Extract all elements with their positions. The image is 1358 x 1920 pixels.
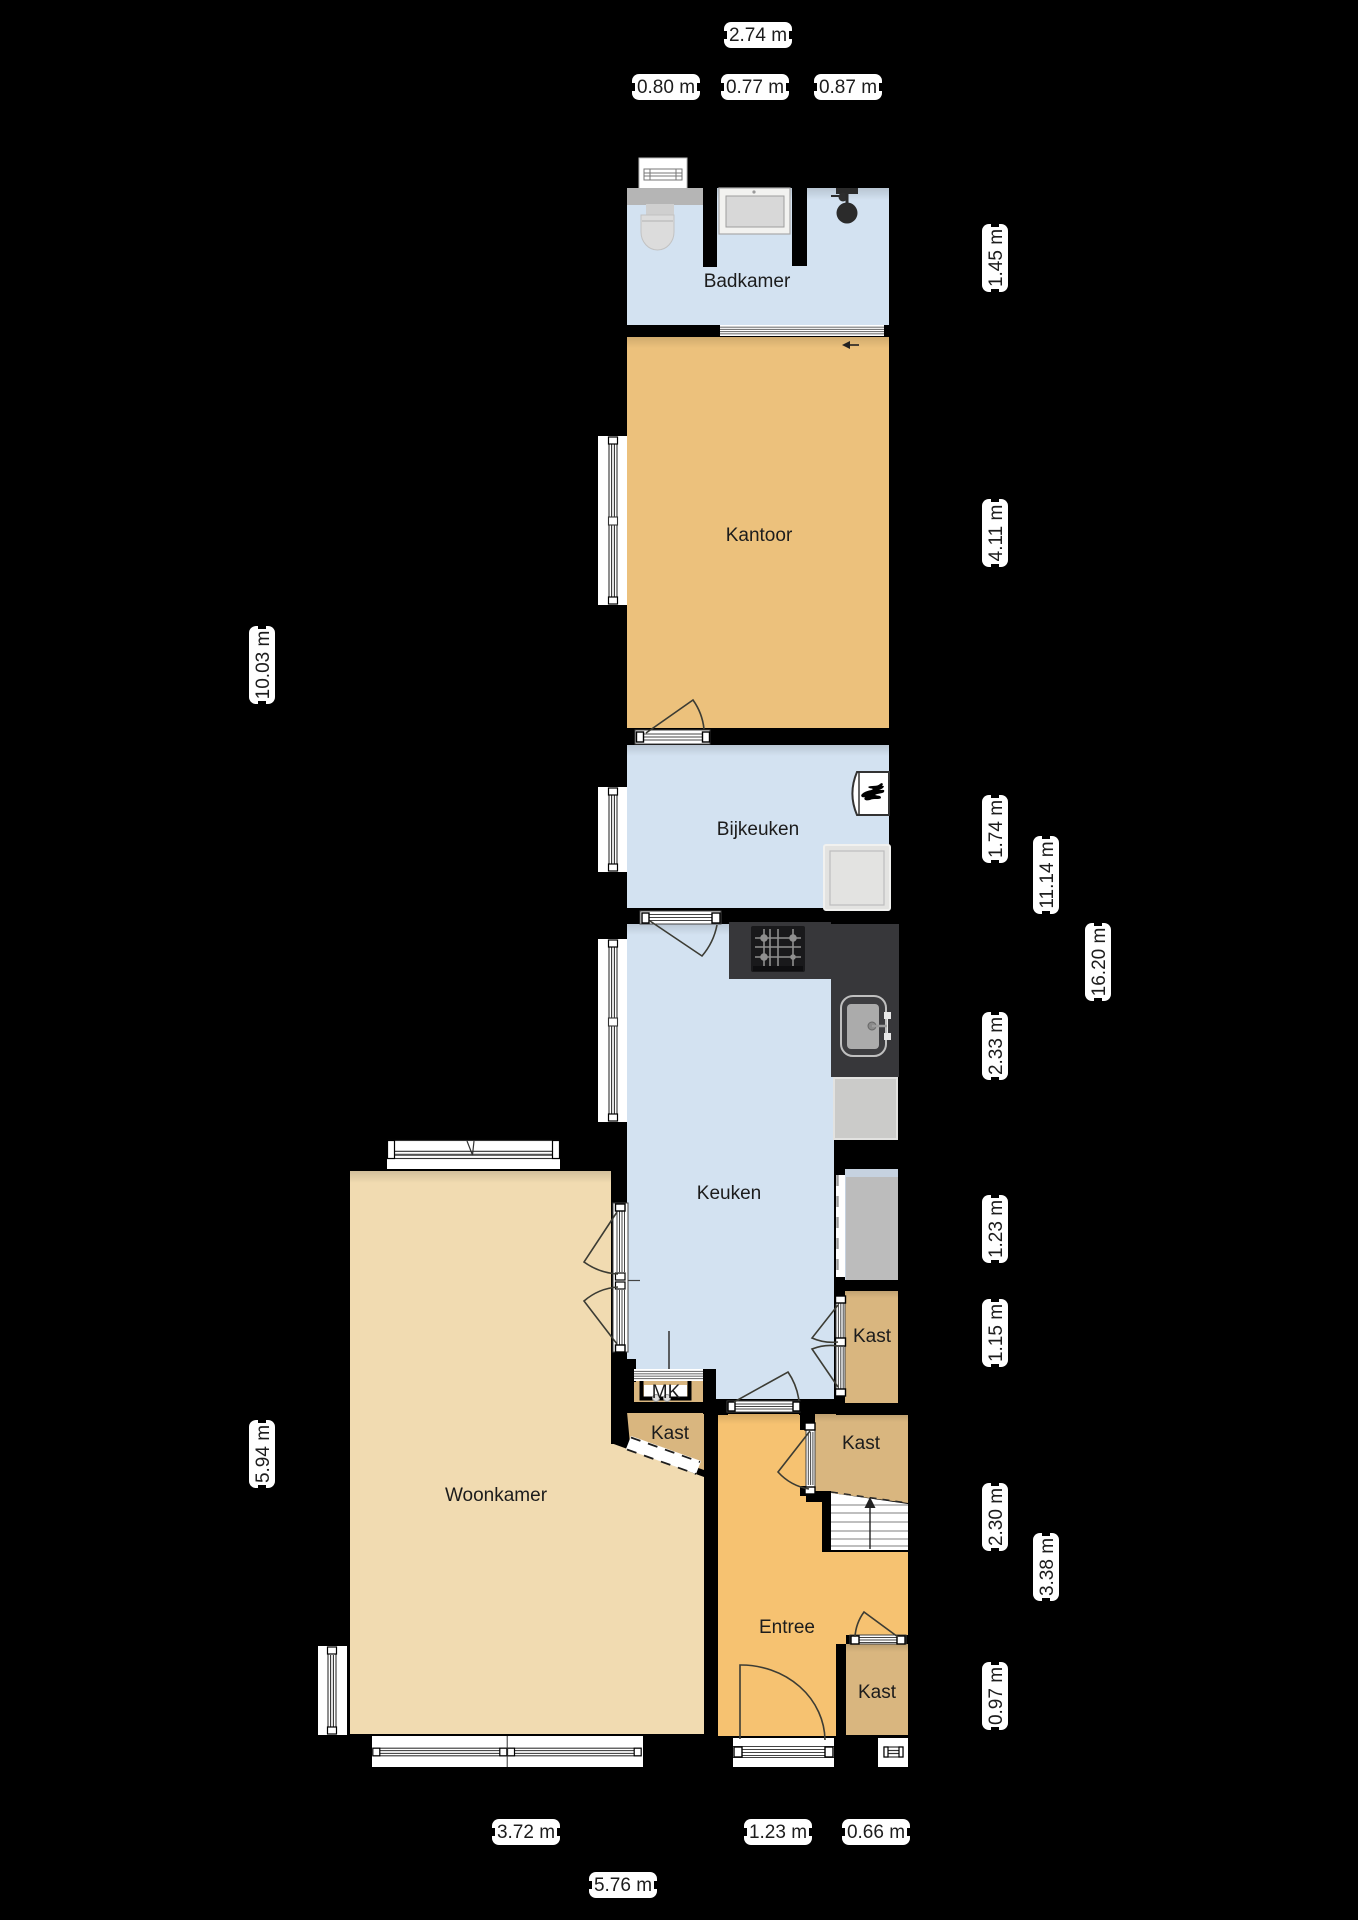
svg-text:0.80 m: 0.80 m xyxy=(637,77,695,98)
svg-text:Kast: Kast xyxy=(842,1433,881,1454)
svg-text:2.74 m: 2.74 m xyxy=(729,25,787,46)
svg-text:1.23 m: 1.23 m xyxy=(749,1822,807,1843)
svg-text:4.11 m: 4.11 m xyxy=(986,505,1007,562)
svg-text:1.74 m: 1.74 m xyxy=(986,800,1007,858)
svg-text:Kast: Kast xyxy=(651,1423,690,1444)
svg-text:Kantoor: Kantoor xyxy=(726,525,793,546)
svg-text:0.77 m: 0.77 m xyxy=(726,77,784,98)
svg-text:Keuken: Keuken xyxy=(697,1183,761,1204)
svg-text:0.87 m: 0.87 m xyxy=(819,77,877,98)
svg-text:MK: MK xyxy=(652,1382,681,1403)
svg-text:Kast: Kast xyxy=(858,1682,897,1703)
svg-text:2.33 m: 2.33 m xyxy=(986,1017,1007,1075)
svg-text:0.66 m: 0.66 m xyxy=(847,1822,905,1843)
svg-text:Badkamer: Badkamer xyxy=(704,271,791,292)
svg-text:2.30 m: 2.30 m xyxy=(986,1488,1007,1546)
svg-text:1.23 m: 1.23 m xyxy=(986,1200,1007,1258)
svg-text:0.97 m: 0.97 m xyxy=(986,1667,1007,1725)
svg-text:1.15 m: 1.15 m xyxy=(986,1304,1007,1362)
svg-text:11.14 m: 11.14 m xyxy=(1037,841,1058,908)
svg-text:3.72 m: 3.72 m xyxy=(497,1822,555,1843)
svg-text:16.20 m: 16.20 m xyxy=(1089,928,1110,997)
svg-text:5.94 m: 5.94 m xyxy=(253,1425,274,1483)
svg-text:10.03 m: 10.03 m xyxy=(253,631,274,700)
svg-text:Kast: Kast xyxy=(853,1326,892,1347)
svg-text:5.76 m: 5.76 m xyxy=(594,1875,652,1896)
svg-text:Bijkeuken: Bijkeuken xyxy=(717,819,799,840)
svg-text:Entree: Entree xyxy=(759,1617,815,1638)
svg-text:1.45 m: 1.45 m xyxy=(986,229,1007,287)
svg-text:Woonkamer: Woonkamer xyxy=(445,1485,548,1506)
svg-text:3.38 m: 3.38 m xyxy=(1037,1538,1058,1596)
